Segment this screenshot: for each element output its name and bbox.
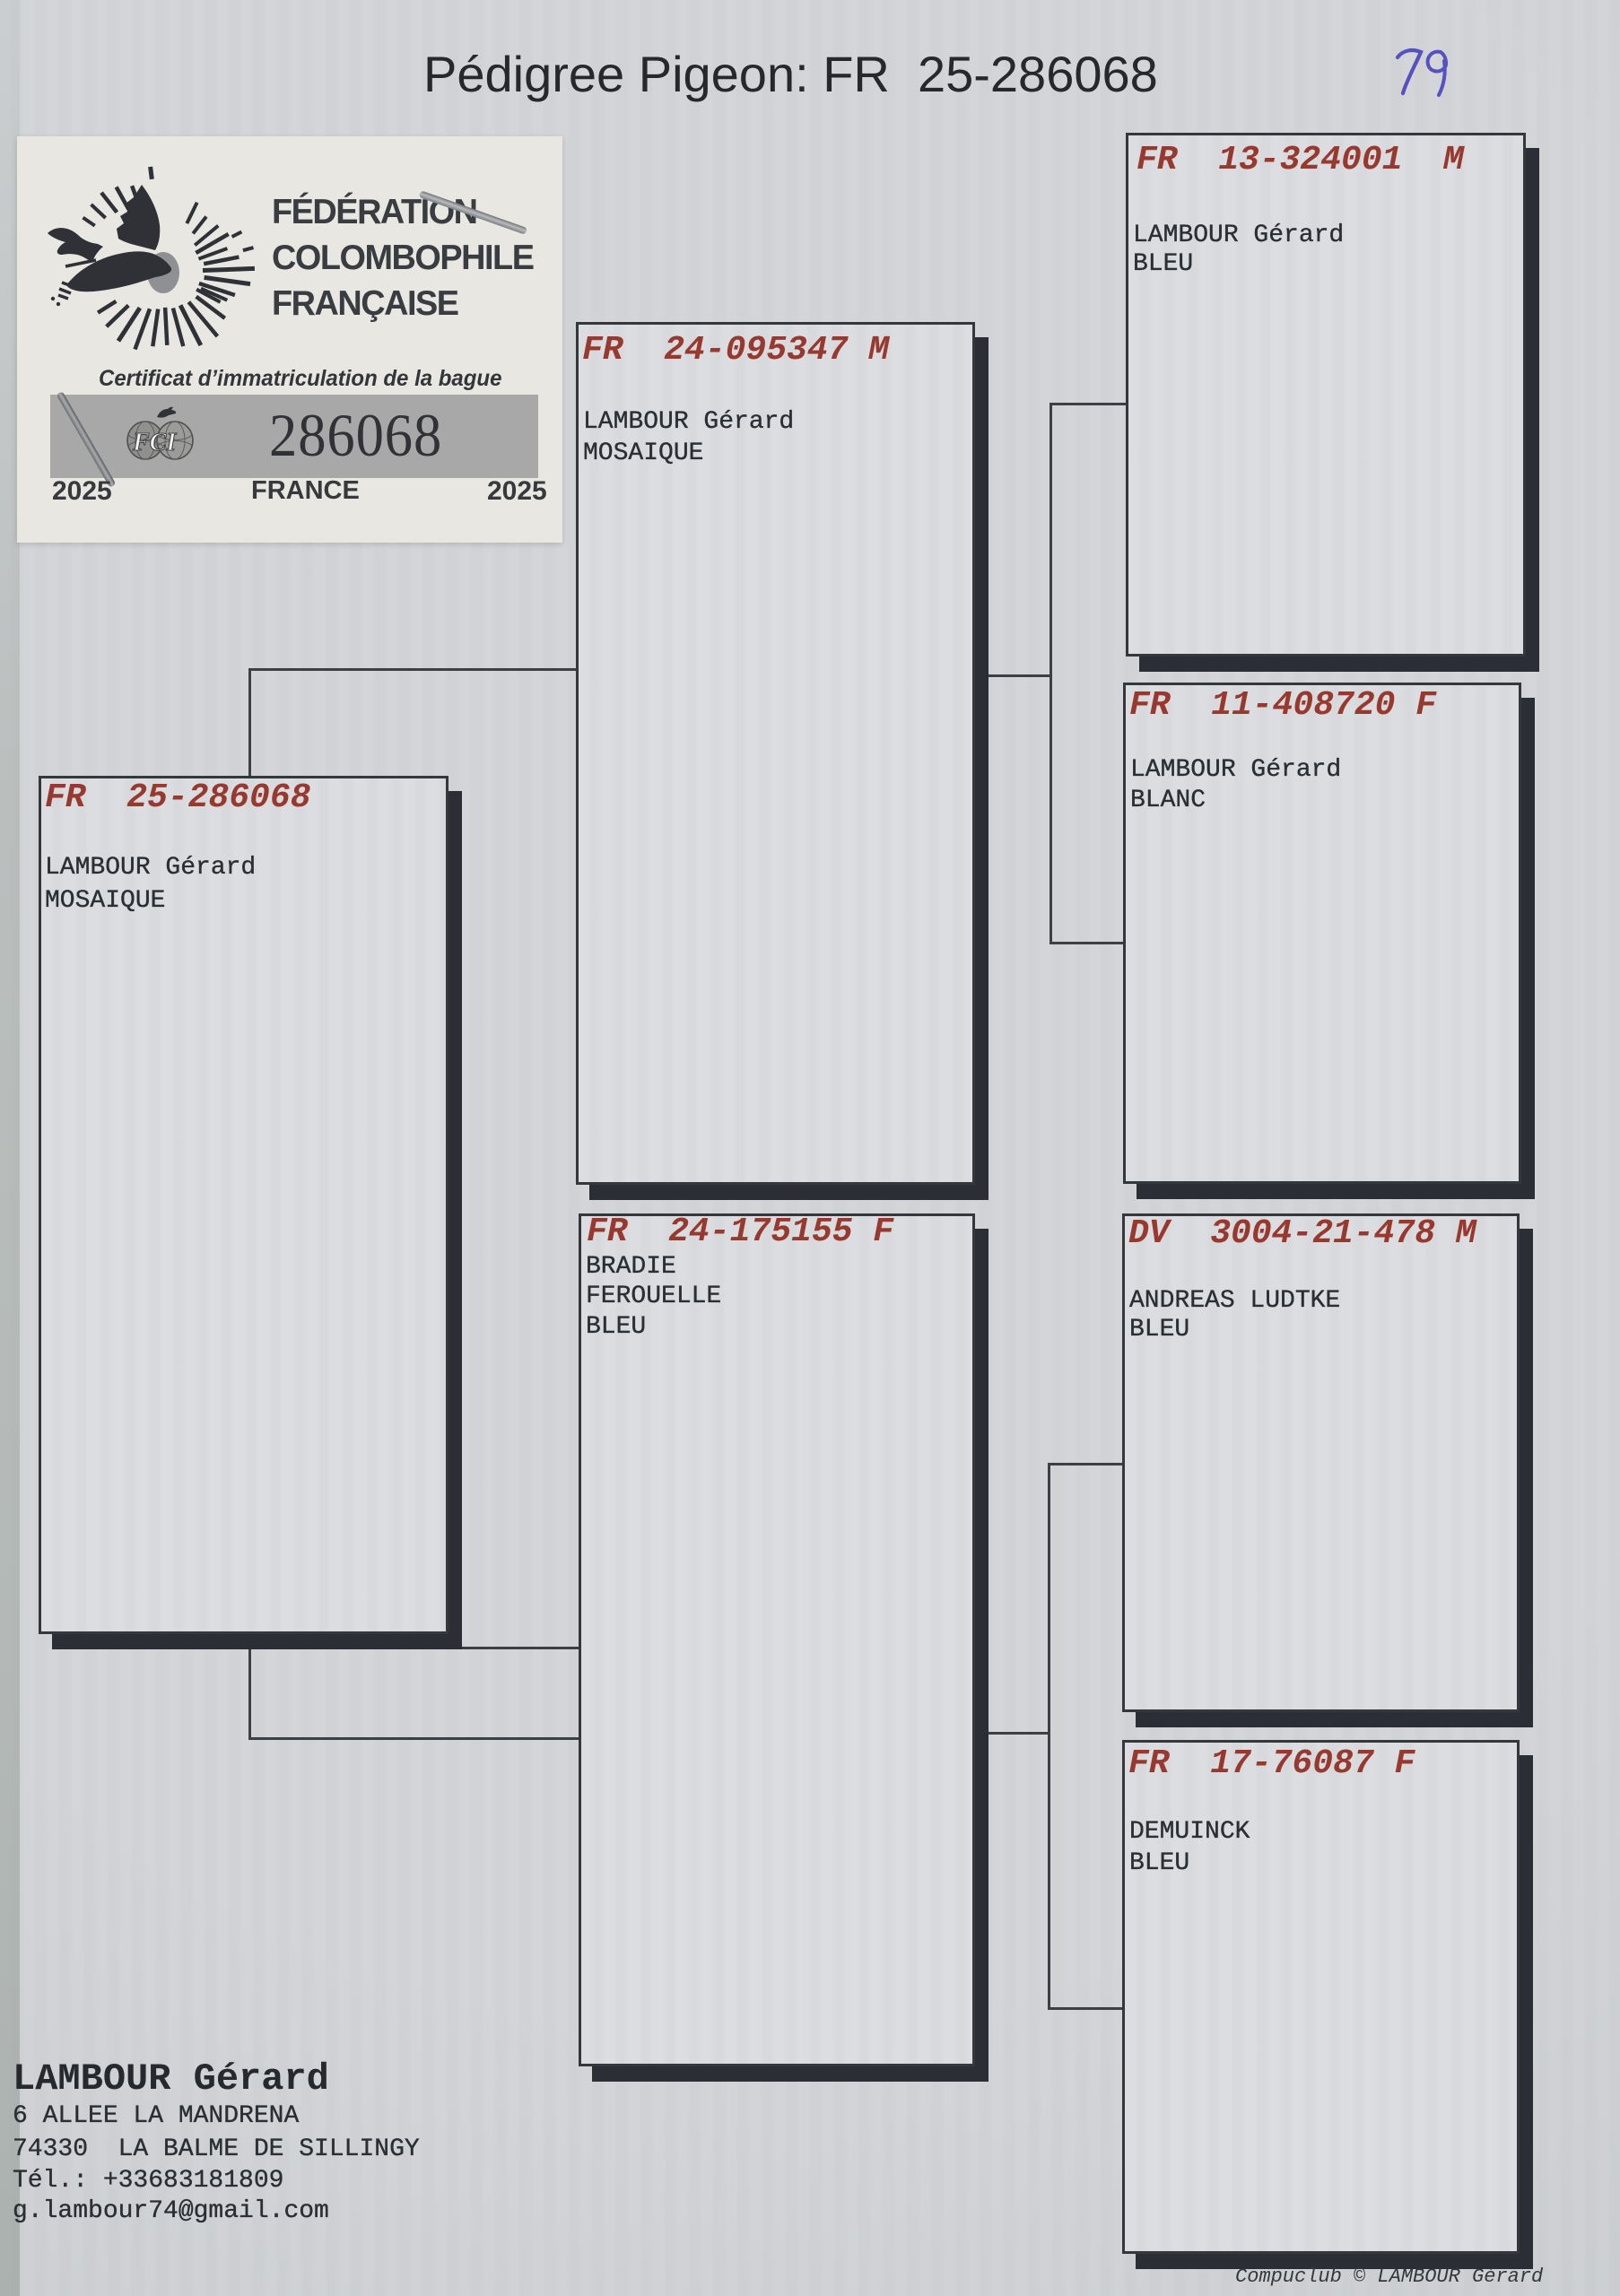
svg-text:FCI: FCI [132, 429, 177, 457]
